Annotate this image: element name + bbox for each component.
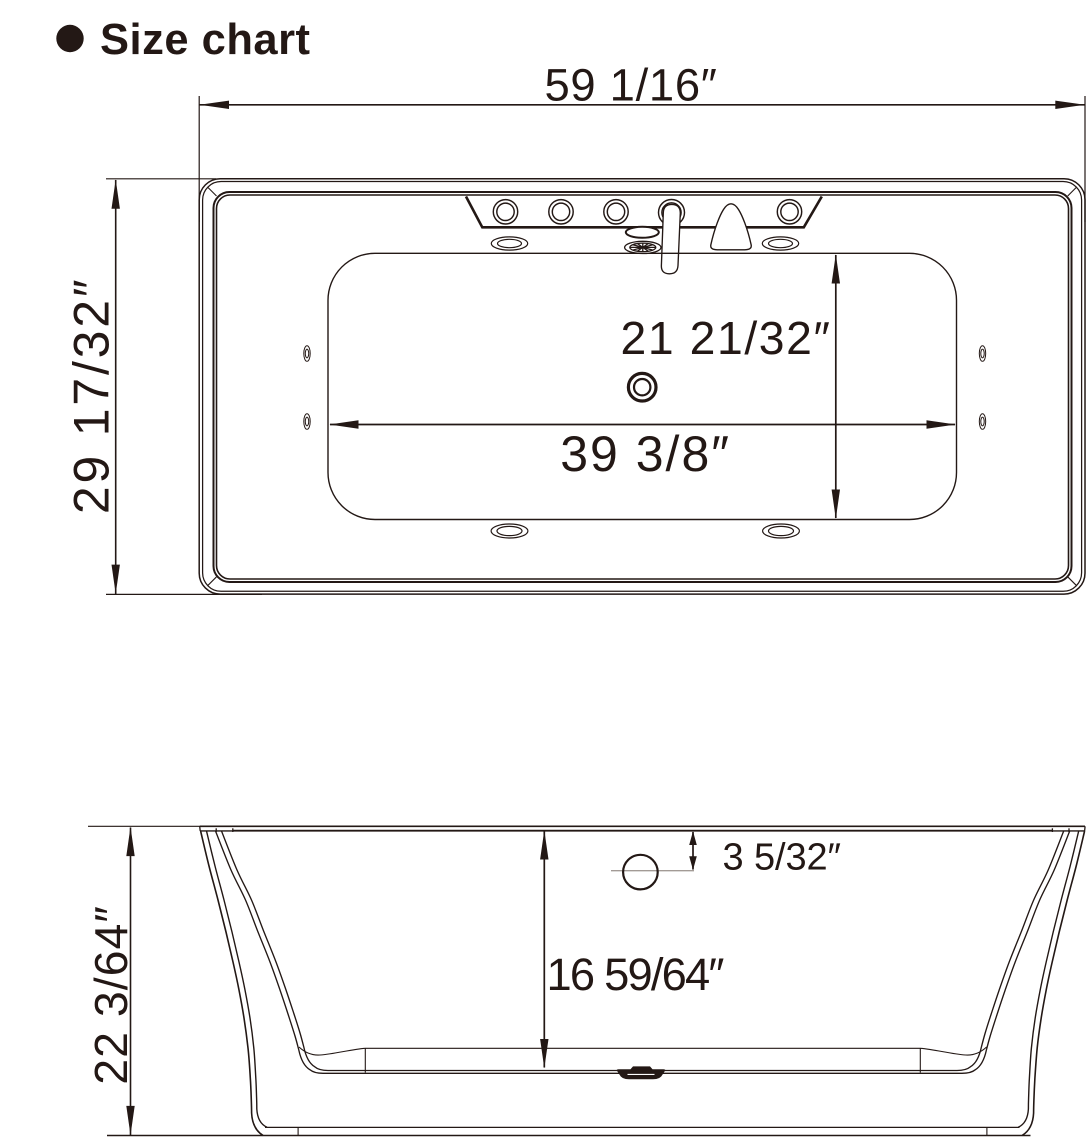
svg-text:22 3/64″: 22 3/64″ bbox=[85, 905, 137, 1085]
svg-text:29 17/32″: 29 17/32″ bbox=[64, 277, 120, 515]
svg-text:21 21/32″: 21 21/32″ bbox=[620, 312, 831, 364]
svg-text:59 1/16″: 59 1/16″ bbox=[544, 59, 717, 110]
svg-text:16 59/64″: 16 59/64″ bbox=[547, 949, 725, 1000]
svg-text:39 3/8″: 39 3/8″ bbox=[560, 426, 731, 482]
svg-text:3 5/32″: 3 5/32″ bbox=[723, 837, 841, 879]
svg-text:Size chart: Size chart bbox=[100, 16, 311, 64]
